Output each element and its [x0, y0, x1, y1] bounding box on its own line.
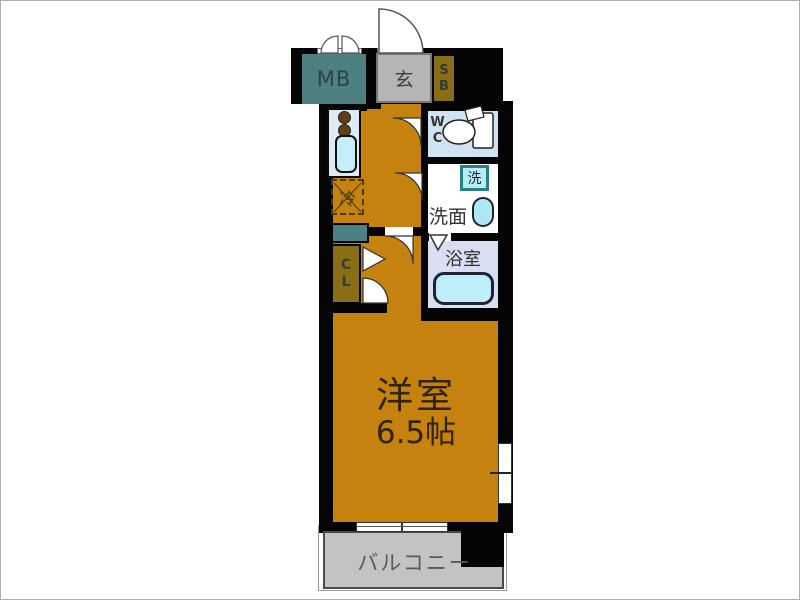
pipe-space-box — [331, 223, 369, 243]
entrance-area: 玄 — [376, 53, 432, 103]
closet: CL — [331, 244, 361, 304]
meter-box-label: MB — [317, 67, 352, 91]
wall-wc-washroom — [428, 156, 498, 164]
shoe-box-label: SB — [438, 63, 451, 95]
washroom-label: 洗面 — [429, 202, 467, 229]
floor-plan: バルコニー MB 玄 SB 冷 CL WC 洗 洗面 浴室 洋室 6.5 — [0, 0, 800, 600]
washing-machine-label: 洗 — [468, 168, 482, 188]
room-doorway-gap — [385, 227, 413, 236]
stove-burner-icon — [338, 111, 351, 124]
refrigerator-label: 冷 — [339, 185, 356, 210]
entrance-label: 玄 — [394, 65, 413, 92]
main-room-size: 6.5帖 — [334, 407, 498, 452]
washbasin-icon — [472, 197, 494, 227]
washing-machine-icon: 洗 — [460, 165, 489, 191]
wc-label: WC — [431, 115, 444, 147]
entrance-door-arc — [379, 9, 423, 53]
side-window-tick — [490, 472, 512, 474]
meter-box: MB — [302, 54, 366, 104]
wall-cross-right — [413, 227, 428, 236]
balcony-window-track — [357, 526, 447, 527]
wall-bathroom-bottom — [421, 308, 513, 321]
balcony-label: バルコニー — [326, 547, 503, 577]
bathtub-icon — [433, 272, 494, 305]
kitchen-sink-icon — [335, 135, 357, 173]
balcony-window-divider — [401, 522, 403, 532]
bathroom-label: 浴室 — [428, 245, 498, 271]
shoe-box: SB — [434, 56, 454, 101]
refrigerator-space: 冷 — [331, 179, 364, 215]
closet-label: CL — [339, 257, 353, 291]
wall-closet-bottom — [319, 303, 387, 313]
bathroom-doorway-gap — [429, 233, 451, 241]
